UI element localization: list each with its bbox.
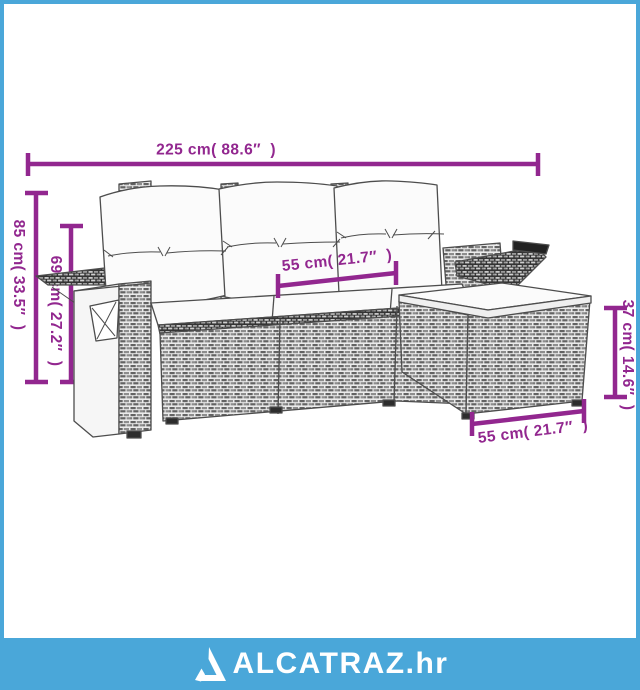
dim-top-width-line (28, 153, 538, 176)
product-dimension-image: 85 cm( 33.5″ ) 69 cm( 27.2″ ) (0, 0, 640, 690)
dim-top-width-label: 225 cm( 88.6″ ) (156, 142, 276, 158)
dim-stool-height-label: 37 cm( 14.6″ ) (619, 300, 635, 411)
watermark-bar: ALCATRAZ.hr (0, 638, 640, 690)
triangle-a-icon (192, 646, 226, 682)
sofa-illustration (0, 0, 640, 690)
dim-height-outer-line (25, 193, 48, 382)
watermark-logo-text: ALCATRAZ.hr (233, 649, 449, 679)
